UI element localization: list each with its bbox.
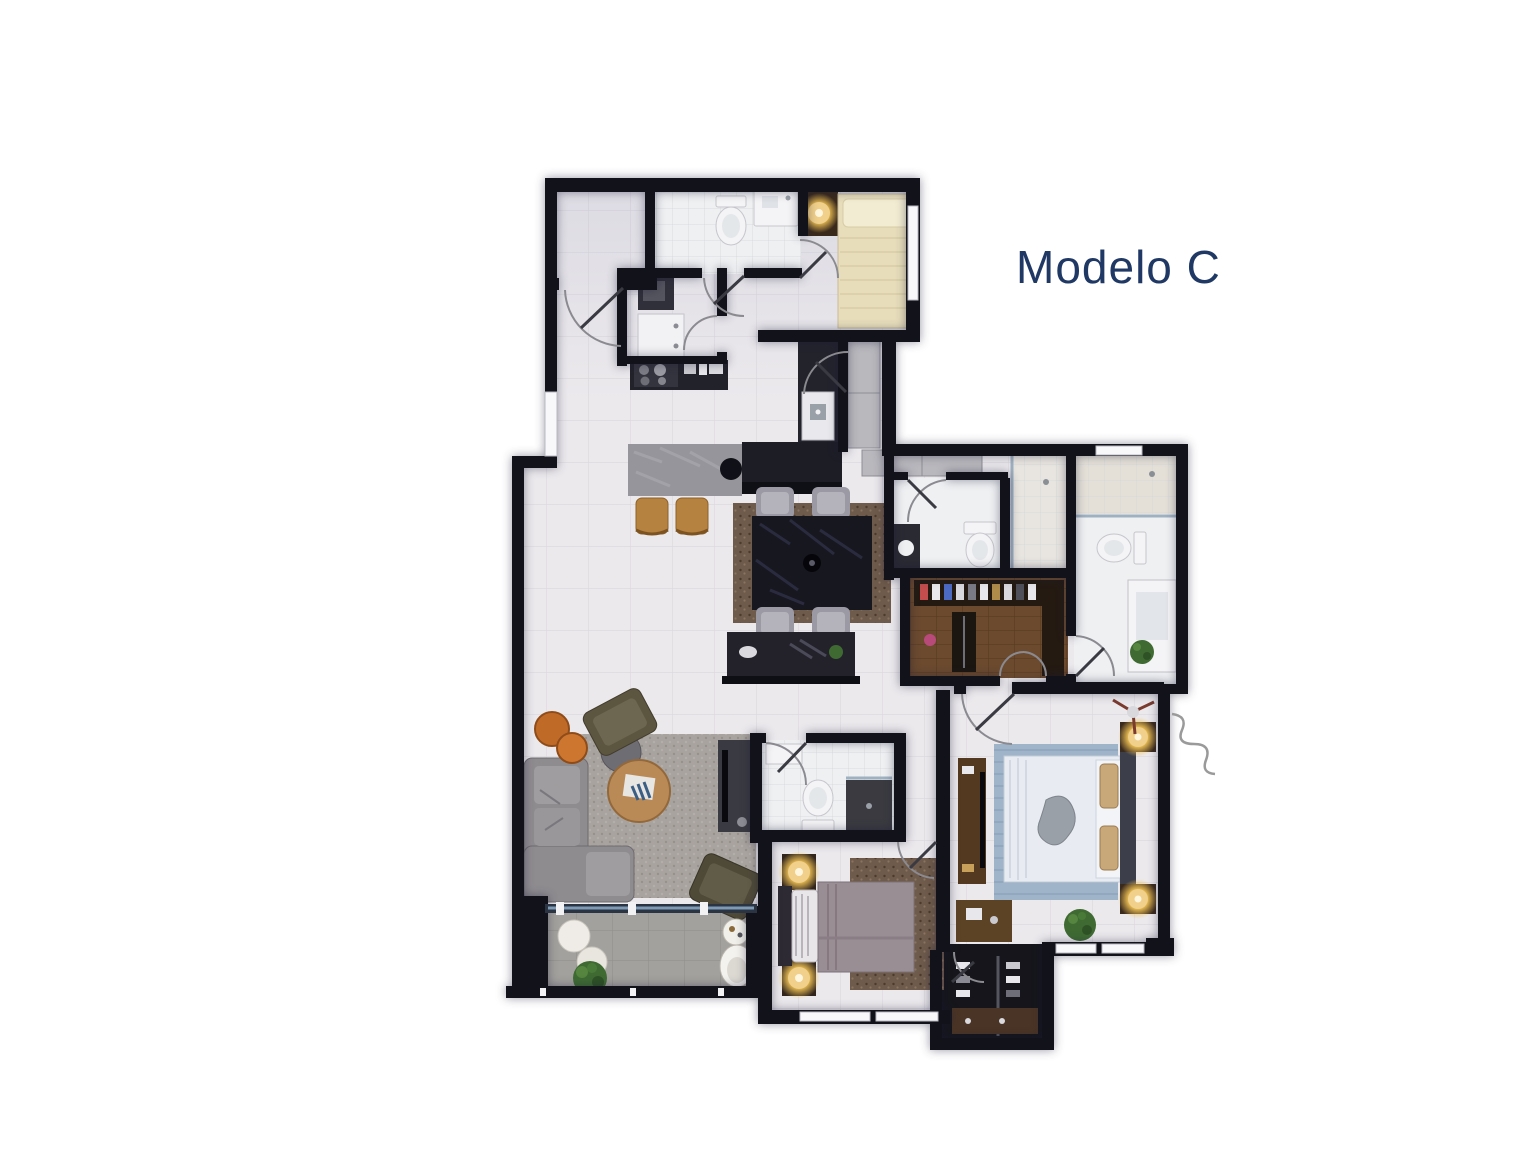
balcony-side-table bbox=[723, 919, 749, 945]
master-pillow bbox=[1100, 826, 1118, 870]
bar-stool bbox=[676, 498, 708, 534]
shared-bathroom-shower-tiles bbox=[1012, 452, 1068, 570]
vanity-plant bbox=[1130, 640, 1154, 664]
window bbox=[876, 1012, 938, 1021]
window bbox=[1056, 944, 1096, 953]
shared-bath-toilet-tank bbox=[964, 522, 996, 534]
window bbox=[1102, 944, 1144, 953]
master-plant bbox=[1064, 909, 1096, 941]
stove bbox=[634, 363, 678, 387]
bar-stool bbox=[636, 498, 668, 534]
window bbox=[908, 206, 918, 300]
master-desk bbox=[956, 900, 1012, 942]
closet2-dresser bbox=[952, 1008, 1038, 1034]
island-sink bbox=[720, 458, 742, 480]
washer bbox=[638, 314, 684, 360]
master-bed bbox=[1004, 752, 1136, 884]
closet-wardrobe bbox=[1042, 580, 1064, 676]
balcony-floor bbox=[512, 906, 758, 992]
window bbox=[545, 392, 557, 456]
window bbox=[1096, 446, 1142, 455]
dining-chair bbox=[812, 487, 850, 519]
cable-squiggle bbox=[1172, 714, 1215, 774]
master-toilet-tank bbox=[1134, 532, 1146, 564]
floor-plan-svg bbox=[0, 0, 1536, 1152]
balcony-pouf bbox=[558, 920, 590, 952]
console-table bbox=[722, 632, 860, 684]
master-bathroom-shower-tiles bbox=[1074, 452, 1178, 514]
floor-plan-page: Modelo C bbox=[0, 0, 1536, 1152]
bedroom2-bed bbox=[778, 882, 914, 972]
window bbox=[800, 1012, 870, 1021]
tv-console bbox=[718, 740, 752, 832]
dining-chair bbox=[756, 487, 794, 519]
plan-title: Modelo C bbox=[1016, 240, 1221, 294]
island-counter-dark bbox=[742, 442, 842, 482]
master-tv-console bbox=[958, 758, 986, 884]
service-bed-pillow bbox=[843, 199, 911, 227]
master-headboard bbox=[1120, 752, 1136, 884]
coffee-table bbox=[608, 760, 670, 822]
coffee-station bbox=[684, 363, 723, 375]
service-toilet-tank bbox=[716, 196, 746, 207]
master-pillow bbox=[1100, 764, 1118, 808]
